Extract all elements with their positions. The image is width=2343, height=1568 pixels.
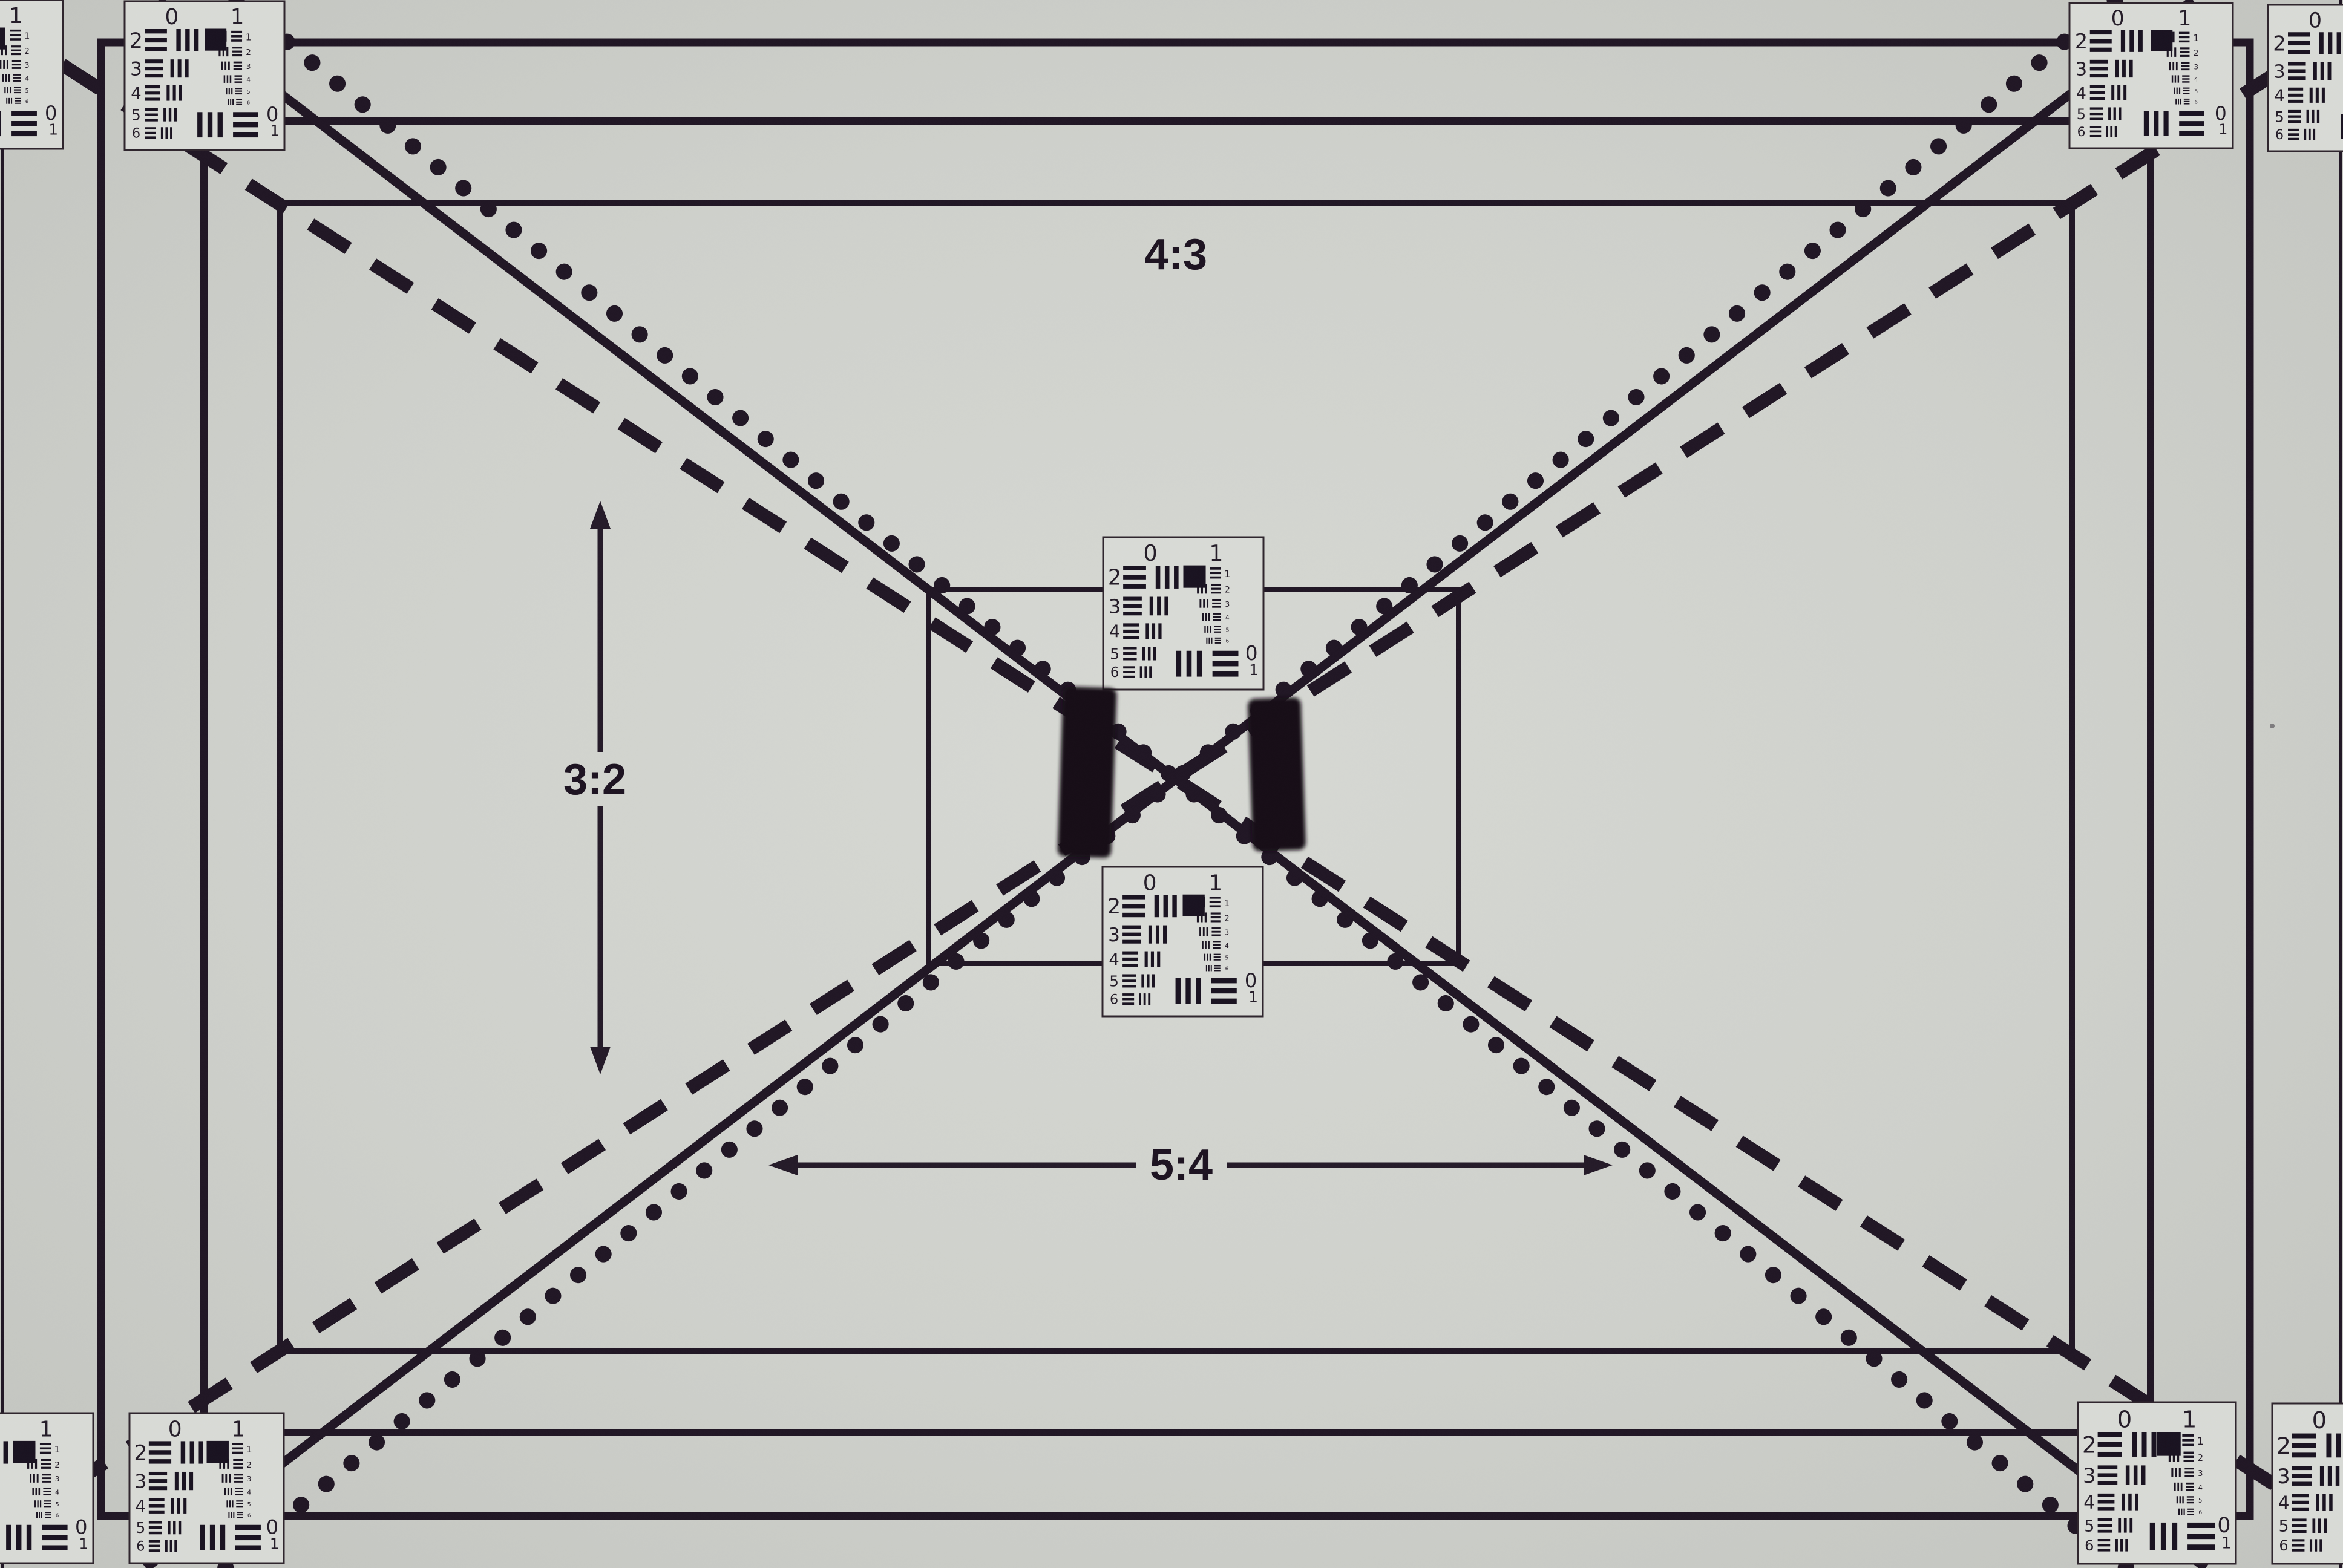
usaf-label: 4	[1225, 614, 1230, 622]
usaf-hbars	[42, 1525, 67, 1530]
usaf-hbars	[1123, 604, 1142, 608]
usaf-label: 3	[1225, 599, 1230, 609]
usaf-vbars	[2171, 47, 2172, 57]
usaf-vbars	[1208, 613, 1210, 621]
usaf-hbars	[1122, 926, 1141, 929]
usaf-label: 6	[1226, 639, 1229, 645]
usaf-vbars	[2180, 1496, 2181, 1503]
usaf-label: 6	[2195, 99, 2198, 105]
usaf-vbars	[2124, 1518, 2127, 1533]
usaf-vbars	[168, 1521, 170, 1534]
usaf-hbars	[2184, 103, 2190, 105]
usaf-vbars	[1203, 927, 1205, 936]
usaf-hbars	[1122, 913, 1145, 917]
usaf-hbars	[2179, 32, 2190, 34]
usaf-hbars	[2288, 62, 2306, 66]
usaf-hbars	[2288, 129, 2299, 131]
usaf-hbars	[2187, 1499, 2194, 1500]
usaf-vbars	[1207, 954, 1208, 961]
usaf-vbars	[2152, 1432, 2157, 1457]
usaf-hbars	[2090, 30, 2112, 34]
usaf-label: 1	[270, 122, 280, 140]
usaf-hbars	[2098, 1452, 2122, 1457]
usaf-hbars	[2292, 1452, 2316, 1457]
usaf-hbars	[1213, 671, 1239, 677]
usaf-label: 1	[2178, 7, 2191, 31]
usaf-hbars	[2292, 1544, 2304, 1546]
usaf-vbars	[2315, 1539, 2317, 1551]
usaf-vbars	[2117, 85, 2120, 100]
usaf-hbars	[2090, 135, 2101, 137]
usaf-vbars	[1198, 897, 1201, 907]
usaf-vbars	[179, 1521, 181, 1534]
usaf-hbars	[2288, 110, 2301, 113]
usaf-hbars	[234, 65, 242, 67]
usaf-hbars	[2184, 1471, 2194, 1473]
usaf-hbars	[2182, 1444, 2194, 1446]
usaf-hbars	[1123, 566, 1146, 570]
usaf-label: 5	[2077, 106, 2086, 123]
usaf-hbars	[149, 1532, 162, 1534]
usaf-hbars	[1211, 927, 1220, 929]
usaf-vbars	[2328, 62, 2332, 80]
usaf-hbars	[42, 1474, 51, 1475]
usaf-hbars	[14, 89, 21, 90]
usaf-vbars	[165, 1540, 168, 1552]
usaf-vbars	[2180, 99, 2181, 105]
usaf-hbars	[149, 1504, 165, 1507]
usaf-vbars	[1197, 912, 1199, 922]
usaf-vbars	[2324, 1518, 2327, 1533]
usaf-label: 3	[134, 1471, 146, 1492]
usaf-label: 6	[56, 1512, 59, 1518]
usaf-vbars	[1185, 978, 1190, 1004]
usaf-hbars	[1123, 666, 1135, 668]
usaf-vbars	[2166, 1434, 2168, 1446]
usaf-vbars	[208, 112, 212, 137]
usaf-label: 1	[1248, 988, 1258, 1006]
dust-speck	[2270, 724, 2275, 728]
usaf-label: 4	[1109, 622, 1120, 642]
usaf-vbars	[2178, 99, 2179, 105]
usaf-vbars	[221, 62, 223, 70]
usaf-label: 2	[2075, 30, 2088, 53]
usaf-vbars	[178, 59, 182, 77]
usaf-hbars	[2180, 47, 2190, 49]
usaf-hbars	[1123, 676, 1135, 678]
usaf-label: 1	[24, 31, 30, 42]
usaf-vbars	[2134, 1465, 2138, 1485]
usaf-label: 2	[129, 29, 143, 53]
usaf-hbars	[149, 1540, 160, 1543]
usaf-label: 3	[1225, 929, 1230, 937]
usaf-vbars	[33, 1443, 36, 1454]
usaf-vbars	[2310, 88, 2313, 103]
usaf-hbars	[237, 1512, 243, 1513]
usaf-vbars	[2174, 47, 2176, 57]
usaf-vbars	[1142, 647, 1145, 660]
usaf-hbars	[1122, 958, 1138, 961]
usaf-hbars	[12, 60, 21, 62]
usaf-vbars	[2169, 62, 2171, 70]
usaf-hbars	[232, 51, 242, 53]
usaf-hbars	[2288, 94, 2303, 97]
usaf-vbars	[1202, 613, 1204, 621]
usaf-target-center-top: 012345612345601	[1103, 537, 1263, 690]
usaf-hbars	[235, 1494, 243, 1495]
usaf-hbars	[1123, 575, 1146, 580]
usaf-hbars	[44, 1506, 51, 1507]
usaf-hbars	[1211, 916, 1221, 918]
usaf-hbars	[145, 67, 163, 70]
usaf-hbars	[2179, 121, 2204, 126]
usaf-vbars	[2320, 1466, 2324, 1486]
usaf-hbars	[232, 1452, 243, 1454]
usaf-label: 3	[2198, 1469, 2203, 1478]
usaf-label: 1	[2197, 1436, 2204, 1447]
usaf-hbars	[1211, 584, 1221, 586]
usaf-vbars	[2179, 1468, 2181, 1477]
usaf-vbars	[190, 1441, 194, 1463]
usaf-vbars	[2118, 1518, 2121, 1533]
usaf-hbars	[2180, 55, 2190, 57]
usaf-hbars	[233, 122, 258, 127]
usaf-vbars	[161, 127, 163, 139]
usaf-label: 6	[1225, 965, 1228, 972]
usaf-vbars	[37, 1500, 38, 1507]
usaf-vbars	[2328, 32, 2332, 54]
usaf-vbars	[1174, 566, 1179, 589]
usaf-vbars	[2312, 1518, 2315, 1533]
velvet-patch-right	[1248, 697, 1306, 852]
usaf-hbars	[1213, 613, 1221, 615]
usaf-hbars	[145, 59, 163, 63]
usaf-vbars	[2337, 32, 2341, 54]
usaf-vbars	[1208, 941, 1210, 949]
usaf-vbars	[36, 1512, 38, 1518]
usaf-hbars	[1213, 651, 1239, 656]
usaf-hbars	[42, 1545, 67, 1550]
usaf-vbars	[231, 88, 232, 94]
usaf-hbars	[2292, 1481, 2312, 1485]
usaf-vbars	[1172, 895, 1176, 917]
usaf-hbars	[233, 1467, 243, 1469]
usaf-vbars	[2164, 32, 2166, 43]
usaf-hbars	[2179, 131, 2204, 136]
usaf-vbars	[1151, 952, 1154, 967]
usaf-hbars	[2184, 101, 2190, 102]
usaf-hbars	[2090, 97, 2105, 100]
usaf-vbars	[217, 1443, 219, 1454]
usaf-vbars	[35, 1488, 37, 1495]
usaf-vbars	[189, 1472, 193, 1490]
usaf-vbars	[2141, 1465, 2146, 1485]
usaf-hbars	[1210, 567, 1221, 570]
usaf-label: 6	[247, 1512, 251, 1518]
usaf-label: 2	[1225, 585, 1230, 595]
usaf-label: 0	[168, 1417, 182, 1442]
usaf-label: 6	[1110, 992, 1118, 1008]
usaf-vbars	[1206, 638, 1207, 644]
usaf-hbars	[149, 1472, 167, 1475]
usaf-label: 5	[2275, 108, 2284, 125]
usaf-hbars	[1123, 636, 1139, 639]
usaf-label: 3	[247, 1475, 252, 1483]
usaf-hbars	[149, 1521, 162, 1523]
usaf-vbars	[2172, 1523, 2177, 1550]
usaf-vbars	[2154, 111, 2158, 136]
usaf-hbars	[1122, 974, 1136, 976]
usaf-vbars	[226, 47, 228, 56]
usaf-vbars	[2110, 126, 2112, 137]
usaf-vbars	[2135, 1494, 2138, 1511]
usaf-hbars	[45, 1512, 51, 1513]
usaf-vbars	[2173, 1452, 2175, 1462]
usaf-label: 2	[54, 1460, 60, 1470]
usaf-vbars	[2176, 62, 2178, 70]
usaf-hbars	[43, 1488, 51, 1489]
usaf-vbars	[1207, 927, 1208, 936]
usaf-vbars	[1202, 941, 1204, 949]
usaf-label: 5	[2198, 1498, 2203, 1504]
usaf-hbars	[231, 39, 242, 42]
usaf-vbars	[185, 29, 189, 51]
usaf-vbars	[2121, 30, 2125, 52]
usaf-vbars	[1205, 613, 1207, 621]
usaf-vbars	[2316, 1494, 2319, 1511]
usaf-vbars	[11, 98, 12, 104]
usaf-vbars	[1204, 626, 1205, 633]
usaf-vbars	[1144, 666, 1147, 678]
usaf-vbars	[1152, 974, 1155, 987]
usaf-vbars	[2317, 110, 2319, 123]
usaf-label: 5	[247, 1501, 251, 1508]
usaf-label: 3	[1108, 924, 1120, 946]
usaf-target-bottom-right-edge: 012345612345601	[2272, 1403, 2343, 1564]
usaf-hbars	[11, 111, 37, 116]
usaf-vbars	[2341, 114, 2343, 139]
usaf-hbars	[2098, 1524, 2112, 1527]
usaf-hbars	[2187, 1502, 2194, 1503]
usaf-label: 2	[1107, 895, 1121, 919]
usaf-hbars	[1122, 904, 1145, 908]
usaf-hbars	[235, 1535, 261, 1540]
usaf-hbars	[2183, 90, 2190, 91]
usaf-vbars	[225, 1443, 228, 1454]
usaf-hbars	[2098, 1481, 2118, 1485]
usaf-hbars	[1213, 944, 1221, 946]
usaf-label: 5	[247, 89, 251, 96]
usaf-target-top-right-edge: 012345612345601	[2268, 5, 2343, 151]
usaf-vbars	[1187, 651, 1192, 677]
usaf-hbars	[2090, 131, 2101, 133]
usaf-vbars	[1144, 993, 1146, 1005]
usaf-vbars	[218, 47, 220, 56]
usaf-hbars	[1123, 652, 1136, 655]
usaf-vbars	[177, 1498, 180, 1514]
usaf-hbars	[149, 1450, 171, 1454]
usaf-vbars	[218, 112, 223, 137]
usaf-vbars	[2122, 60, 2126, 77]
usaf-vbars	[226, 88, 227, 94]
usaf-vbars	[2175, 1434, 2177, 1446]
usaf-hbars	[11, 131, 37, 136]
usaf-vbars	[1164, 895, 1168, 917]
usaf-vbars	[27, 1459, 29, 1469]
usaf-vbars	[2115, 60, 2119, 77]
usaf-vbars	[1150, 597, 1153, 616]
usaf-vbars	[2179, 88, 2180, 94]
usaf-vbars	[2304, 129, 2306, 140]
usaf-label: 4	[2274, 87, 2284, 105]
usaf-vbars	[1197, 651, 1202, 677]
usaf-vbars	[1211, 638, 1212, 644]
usaf-vbars	[2128, 1494, 2132, 1511]
usaf-hbars	[149, 1511, 165, 1514]
usaf-label: 1	[231, 5, 244, 30]
usaf-hbars	[233, 112, 258, 117]
usaf-hbars	[44, 1503, 51, 1504]
usaf-target-bottom-right: 012345612345601	[2078, 1402, 2236, 1564]
usaf-hbars	[42, 1481, 51, 1483]
usaf-vbars	[2106, 126, 2108, 137]
usaf-hbars	[40, 1443, 51, 1445]
usaf-hbars	[145, 97, 160, 100]
usaf-vbars	[2115, 1539, 2118, 1552]
usaf-vbars	[16, 1525, 21, 1550]
usaf-label: 1	[1224, 898, 1230, 909]
usaf-label: 1	[2218, 121, 2227, 138]
usaf-hbars	[2090, 126, 2101, 128]
usaf-vbars	[1, 45, 3, 55]
usaf-vbars	[2175, 99, 2177, 105]
usaf-vbars	[1153, 647, 1156, 660]
usaf-vbars	[2175, 75, 2176, 82]
usaf-hbars	[234, 68, 242, 70]
usaf-vbars	[0, 111, 1, 136]
usaf-vbars	[1145, 952, 1148, 967]
usaf-vbars	[40, 1500, 41, 1507]
usaf-vbars	[34, 1500, 36, 1507]
usaf-vbars	[1148, 993, 1150, 1005]
usaf-vbars	[2177, 1483, 2179, 1491]
usaf-vbars	[27, 1525, 31, 1550]
usaf-label: 6	[2085, 1537, 2094, 1554]
usaf-label: 2	[134, 1441, 147, 1465]
usaf-hbars	[2187, 1544, 2215, 1550]
usaf-hbars	[2098, 1549, 2111, 1551]
usaf-vbars	[221, 1443, 223, 1454]
usaf-label: 4	[1109, 949, 1119, 969]
usaf-hbars	[236, 102, 242, 103]
usaf-hbars	[2292, 1494, 2309, 1498]
usaf-vbars	[2328, 1466, 2332, 1486]
usaf-hbars	[1211, 999, 1237, 1004]
usaf-hbars	[2090, 39, 2112, 43]
usaf-hbars	[2181, 62, 2190, 64]
usaf-label: 5	[131, 106, 141, 124]
usaf-hbars	[149, 1459, 171, 1463]
usaf-vbars	[198, 1441, 203, 1463]
usaf-label: 3	[2277, 1465, 2290, 1488]
usaf-hbars	[2090, 48, 2112, 52]
usaf-hbars	[2090, 118, 2103, 120]
usaf-hbars	[43, 1491, 51, 1492]
usaf-label: 6	[132, 126, 140, 142]
usaf-label: 1	[246, 1444, 252, 1455]
usaf-label: 5	[2084, 1517, 2094, 1535]
usaf-label: 6	[2279, 1537, 2288, 1554]
usaf-vbars	[224, 1488, 226, 1495]
usaf-hbars	[41, 1467, 51, 1469]
usaf-hbars	[2187, 1514, 2194, 1515]
usaf-vbars	[1208, 638, 1210, 644]
usaf-label: 5	[1109, 972, 1119, 990]
usaf-label: 4	[247, 1489, 251, 1497]
usaf-vbars	[173, 1521, 175, 1534]
usaf-vbars	[2144, 111, 2149, 136]
usaf-vbars	[2, 74, 4, 82]
usaf-vbars	[1155, 895, 1159, 917]
usaf-vbars	[223, 47, 224, 56]
usaf-vbars	[2307, 110, 2309, 123]
usaf-label: 2	[2082, 1431, 2097, 1458]
usaf-vbars	[2321, 62, 2324, 80]
usaf-vbars	[24, 1443, 27, 1454]
usaf-label: 4	[136, 1496, 146, 1516]
usaf-hbars	[1123, 597, 1142, 601]
usaf-vbars	[2178, 75, 2179, 82]
usaf-vbars	[2177, 1496, 2178, 1503]
usaf-hbars	[13, 74, 21, 76]
usaf-vbars	[2129, 60, 2133, 77]
usaf-vbars	[2313, 62, 2317, 80]
usaf-vbars	[166, 85, 169, 101]
usaf-hbars	[2288, 138, 2299, 140]
usaf-hbars	[145, 38, 167, 42]
usaf-vbars	[175, 1472, 179, 1490]
usaf-hbars	[145, 85, 160, 88]
usaf-vbars	[10, 87, 11, 93]
usaf-label: 3	[2273, 61, 2285, 82]
usaf-hbars	[10, 38, 21, 41]
usaf-hbars	[234, 78, 242, 80]
usaf-hbars	[2184, 1468, 2194, 1469]
usaf-hbars	[45, 1517, 51, 1518]
usaf-vbars	[28, 1443, 31, 1454]
usaf-vbars	[224, 75, 226, 83]
usaf-label: 6	[247, 100, 250, 106]
usaf-vbars	[1206, 965, 1207, 972]
usaf-hbars	[1214, 970, 1221, 971]
usaf-vbars	[2322, 1494, 2326, 1511]
usaf-vbars	[4, 87, 5, 93]
usaf-vbars	[222, 1474, 224, 1482]
usaf-vbars	[32, 1488, 34, 1495]
usaf-vbars	[2312, 110, 2314, 123]
usaf-hbars	[1213, 661, 1239, 667]
usaf-target-bottom-left-edge: 012345612345601	[0, 1413, 93, 1563]
usaf-label: 0	[1143, 871, 1157, 895]
usaf-vbars	[2132, 1432, 2137, 1457]
usaf-hbars	[1211, 988, 1237, 993]
usaf-hbars	[11, 121, 37, 126]
usaf-hbars	[42, 1535, 67, 1540]
usaf-hbars	[13, 80, 21, 82]
usaf-hbars	[2288, 50, 2310, 54]
usaf-vbars	[2114, 107, 2116, 120]
usaf-vbars	[165, 127, 168, 139]
